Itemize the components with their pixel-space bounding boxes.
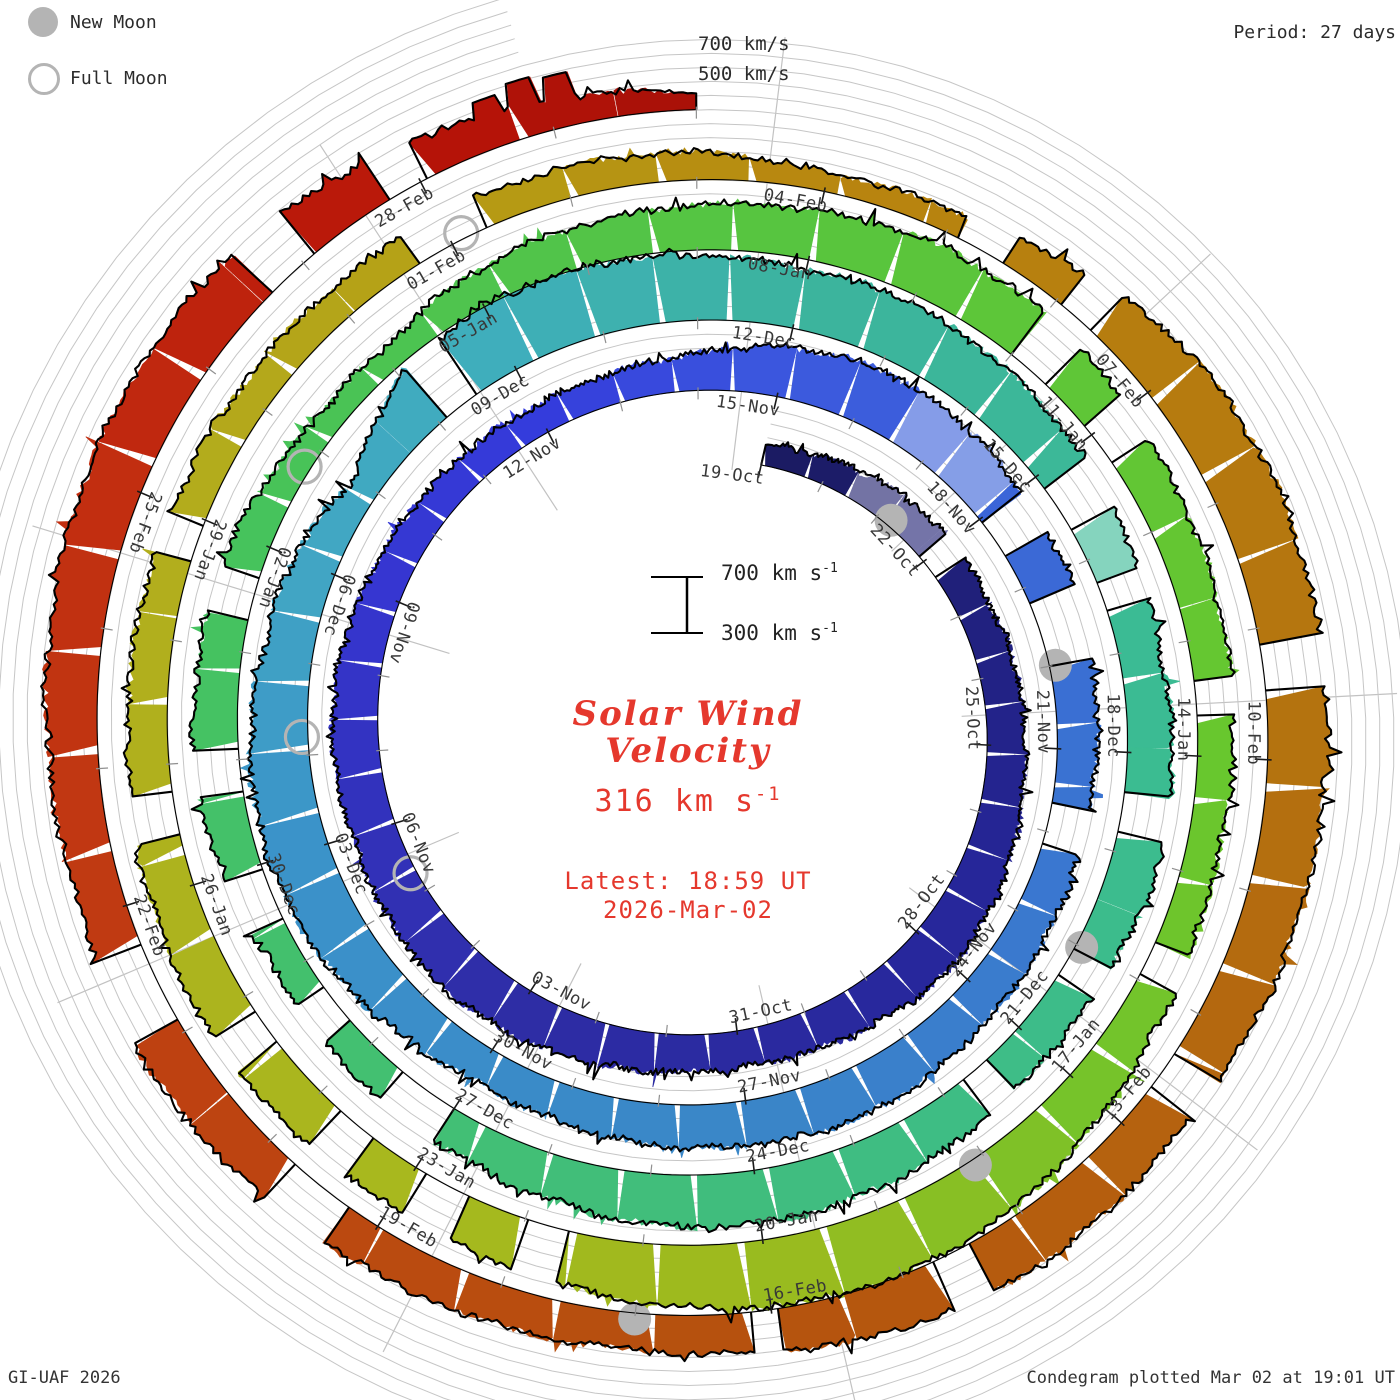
current-velocity: 316 km s-1: [468, 784, 908, 819]
svg-text:25-Oct: 25-Oct: [961, 686, 984, 751]
legend-new-moon-label: New Moon: [70, 12, 157, 33]
scale-bottom-text: 300 km s: [721, 621, 822, 645]
full-moon-icon: [28, 63, 60, 95]
chart-title-line2: Velocity: [468, 733, 908, 770]
axis-label-700: 700 km/s: [698, 33, 790, 55]
current-velocity-exp: -1: [755, 784, 781, 805]
legend-full-moon-label: Full Moon: [70, 68, 168, 89]
condegram-screen: 19-Oct22-Oct25-Oct28-Oct31-Oct03-Nov06-N…: [0, 0, 1400, 1400]
scale-top-exp: -1: [822, 561, 838, 576]
scale-bottom-exp: -1: [822, 621, 838, 636]
credit-label: GI-UAF 2026: [8, 1368, 121, 1388]
scale-top-label: 700 km s-1: [721, 561, 838, 585]
new-moon-icon: [28, 7, 58, 37]
svg-text:21-Nov: 21-Nov: [1032, 689, 1053, 754]
axis-label-500: 500 km/s: [698, 63, 790, 85]
period-label: Period: 27 days: [1233, 22, 1396, 43]
latest-time: Latest: 18:59 UT: [468, 867, 908, 896]
chart-title-line1: Solar Wind: [468, 696, 908, 733]
current-velocity-text: 316 km s: [595, 784, 756, 819]
latest-date: 2026-Mar-02: [468, 896, 908, 925]
scale-bottom-label: 300 km s-1: [721, 621, 838, 645]
center-title-block: Solar Wind Velocity 316 km s-1 Latest: 1…: [468, 696, 908, 925]
plotted-time-label: Condegram plotted Mar 02 at 19:01 UT: [1027, 1368, 1395, 1388]
svg-text:10-Feb: 10-Feb: [1243, 701, 1263, 766]
scale-top-text: 700 km s: [721, 561, 822, 585]
svg-text:18-Dec: 18-Dec: [1103, 693, 1124, 758]
svg-text:14-Jan: 14-Jan: [1173, 697, 1193, 761]
svg-text:19-Oct: 19-Oct: [699, 461, 765, 489]
